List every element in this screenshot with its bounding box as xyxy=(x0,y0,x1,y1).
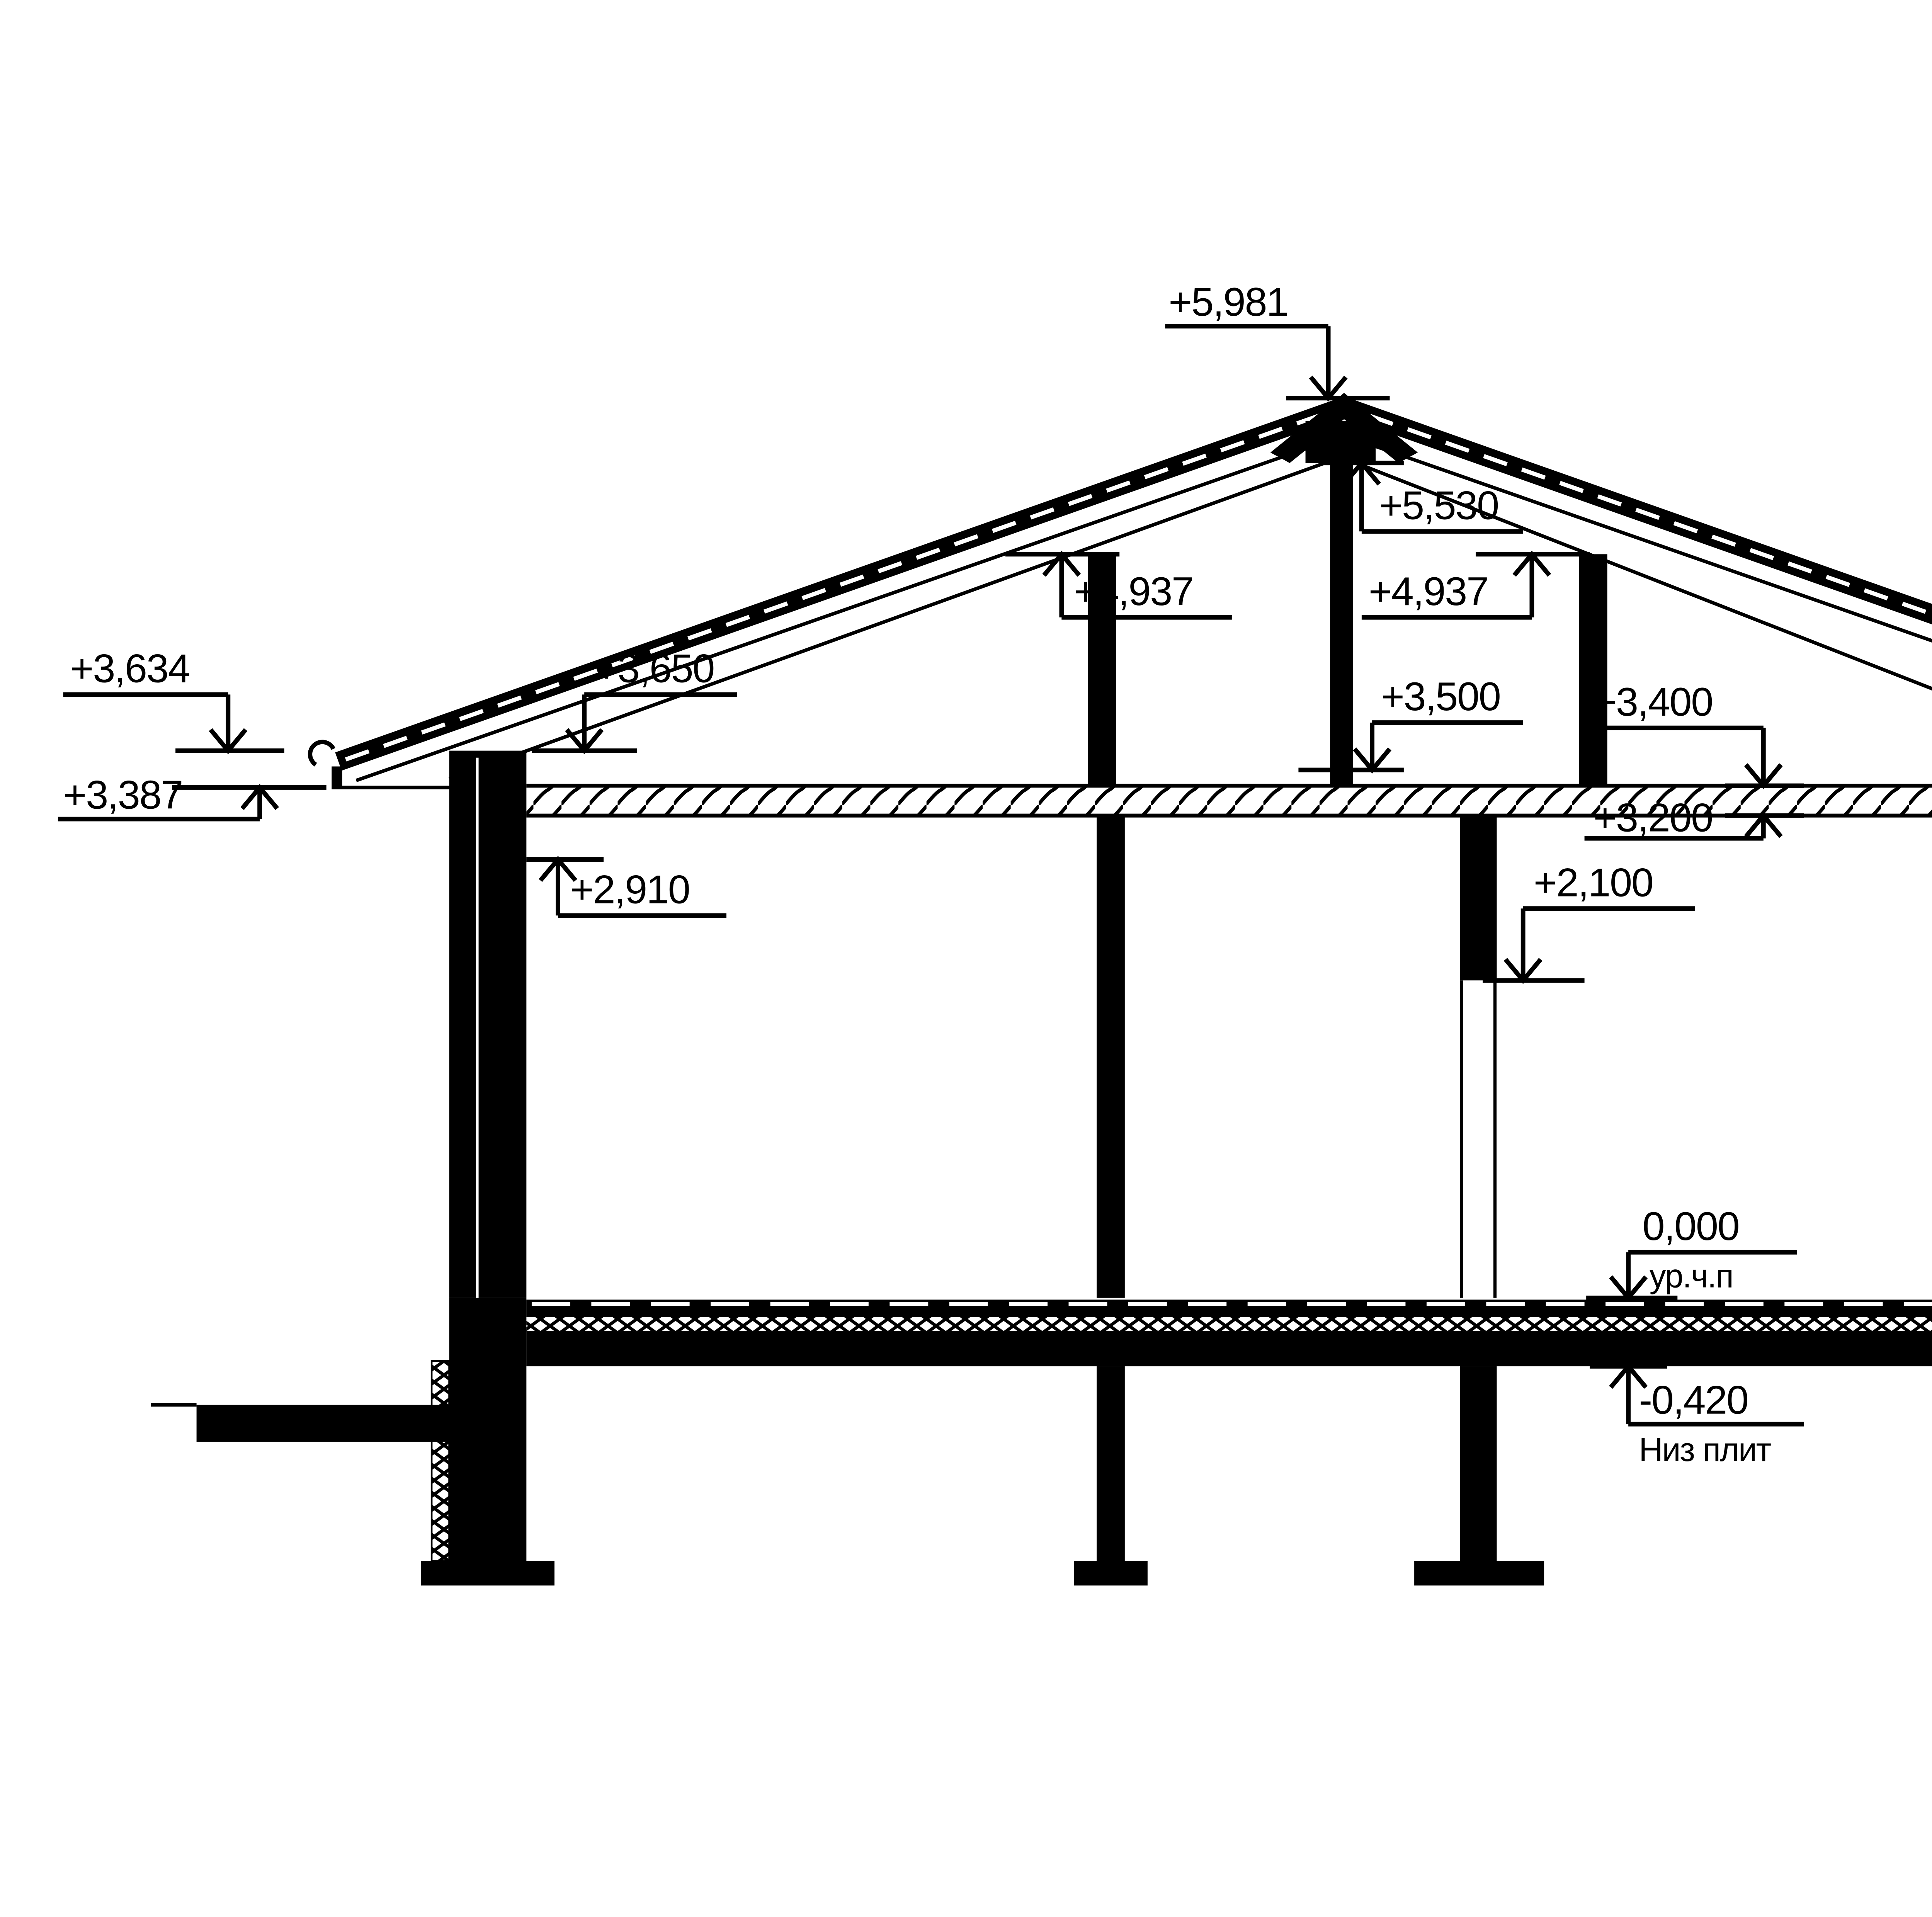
elevation-label: +2,100 xyxy=(1534,860,1653,905)
elevation-label: +5,530 xyxy=(1379,483,1498,528)
foundation-insulation-left xyxy=(432,1361,449,1561)
foundation-column-mid-left xyxy=(1097,1366,1125,1561)
foundation-column-center xyxy=(1460,1366,1497,1561)
floor-insulation-hatch xyxy=(526,1317,1932,1331)
elevation-label: +3,400 xyxy=(1593,679,1713,725)
partition-left xyxy=(1097,816,1125,1298)
ridge-post xyxy=(1330,463,1353,786)
footing-mid-left xyxy=(1074,1561,1148,1586)
door-header xyxy=(1460,816,1497,981)
foundation-left xyxy=(449,1298,527,1561)
elevation-label: +3,200 xyxy=(1593,795,1713,840)
architectural-section-page: +5,981+5,530+4,937+4,937+3,650+3,634+3,3… xyxy=(0,0,1932,1917)
elevation-label: +2,910 xyxy=(570,867,690,912)
elevation-sublabel: Низ плит xyxy=(1639,1431,1771,1468)
paper-background xyxy=(0,0,1932,1917)
elevation-label: +4,937 xyxy=(1074,569,1193,614)
floor-slab xyxy=(526,1331,1932,1366)
left-wall xyxy=(449,751,527,1298)
floor-structure xyxy=(526,1300,1932,1366)
footing-left xyxy=(421,1561,554,1586)
ground-slab-left xyxy=(197,1405,451,1442)
ceiling-slab-hatch xyxy=(526,788,1932,816)
elevation-sublabel: ур.ч.п xyxy=(1650,1258,1733,1295)
elevation-label: -0,420 xyxy=(1639,1377,1748,1422)
section-drawing-canvas: +5,981+5,530+4,937+4,937+3,650+3,634+3,3… xyxy=(0,0,1932,1917)
footing-center xyxy=(1414,1561,1544,1586)
elevation-label: +3,500 xyxy=(1381,674,1500,719)
ridge-beam xyxy=(1306,421,1376,463)
elevation-label: +3,387 xyxy=(63,772,182,817)
elevation-label: +3,634 xyxy=(70,646,190,691)
elevation-label: 0,000 xyxy=(1642,1204,1739,1249)
elevation-label: +5,981 xyxy=(1168,279,1288,325)
attic-column-right xyxy=(1579,554,1607,786)
elevation-label: +3,650 xyxy=(595,646,714,691)
ceiling-slab xyxy=(526,786,1932,815)
elevation-label: +4,937 xyxy=(1369,569,1488,614)
